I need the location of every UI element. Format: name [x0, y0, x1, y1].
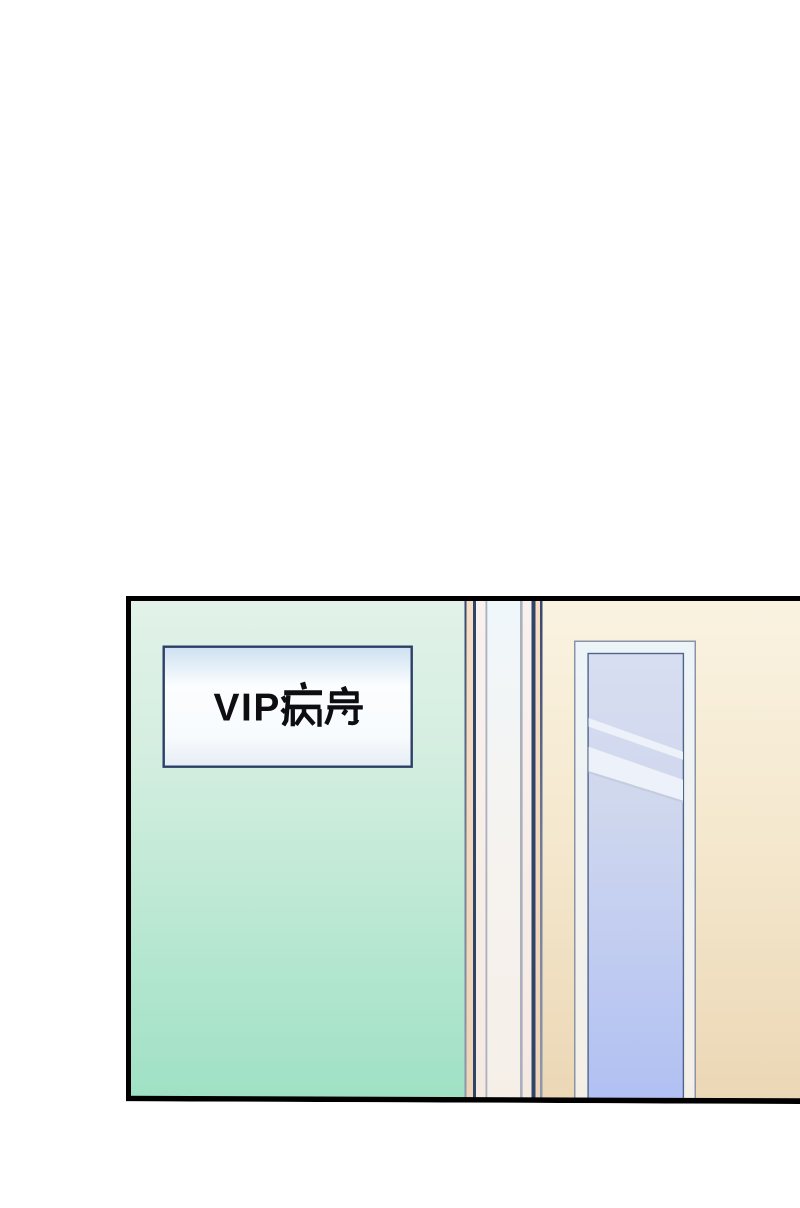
svg-text:VIP: VIP	[214, 687, 281, 730]
